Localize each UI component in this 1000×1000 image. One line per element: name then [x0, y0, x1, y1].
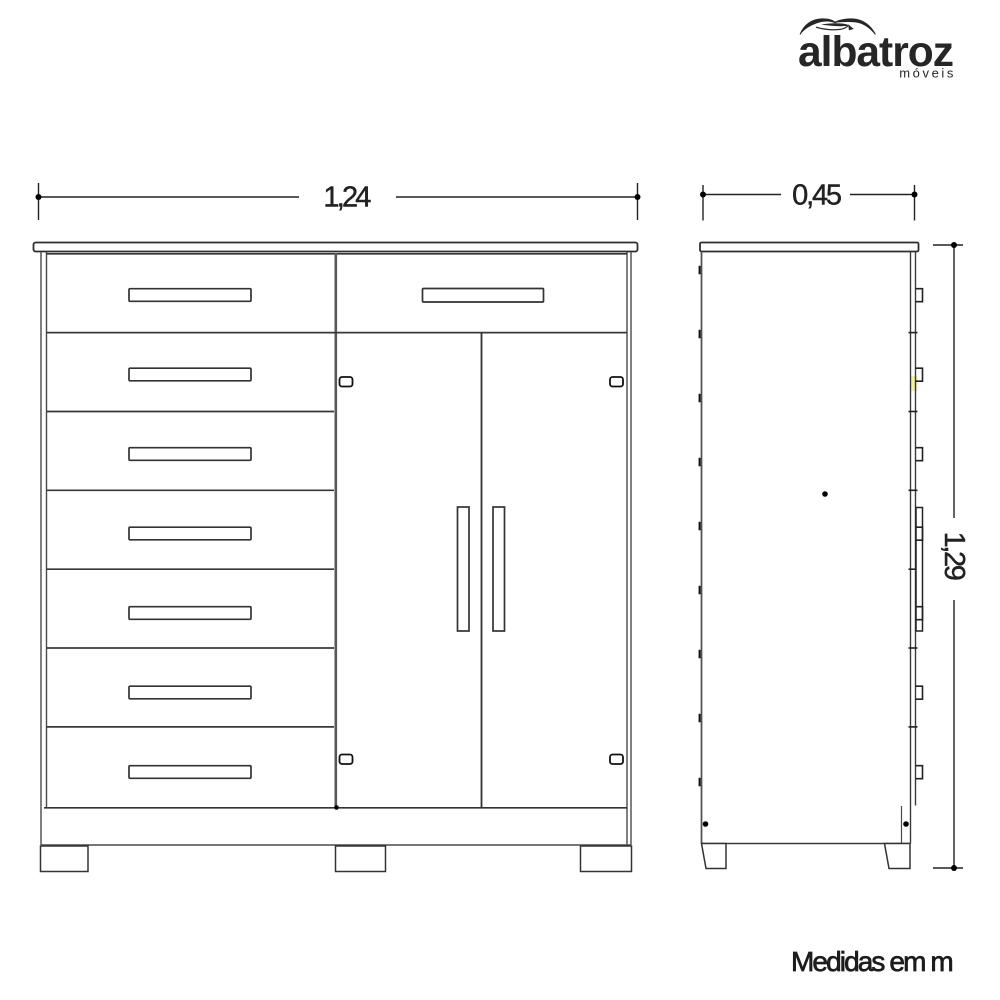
svg-text:1,29: 1,29	[938, 532, 970, 580]
svg-text:0,45: 0,45	[792, 180, 841, 212]
svg-text:1,24: 1,24	[323, 182, 371, 214]
svg-text:móveis: móveis	[899, 66, 956, 81]
svg-text:Medidas em m: Medidas em m	[791, 946, 952, 977]
